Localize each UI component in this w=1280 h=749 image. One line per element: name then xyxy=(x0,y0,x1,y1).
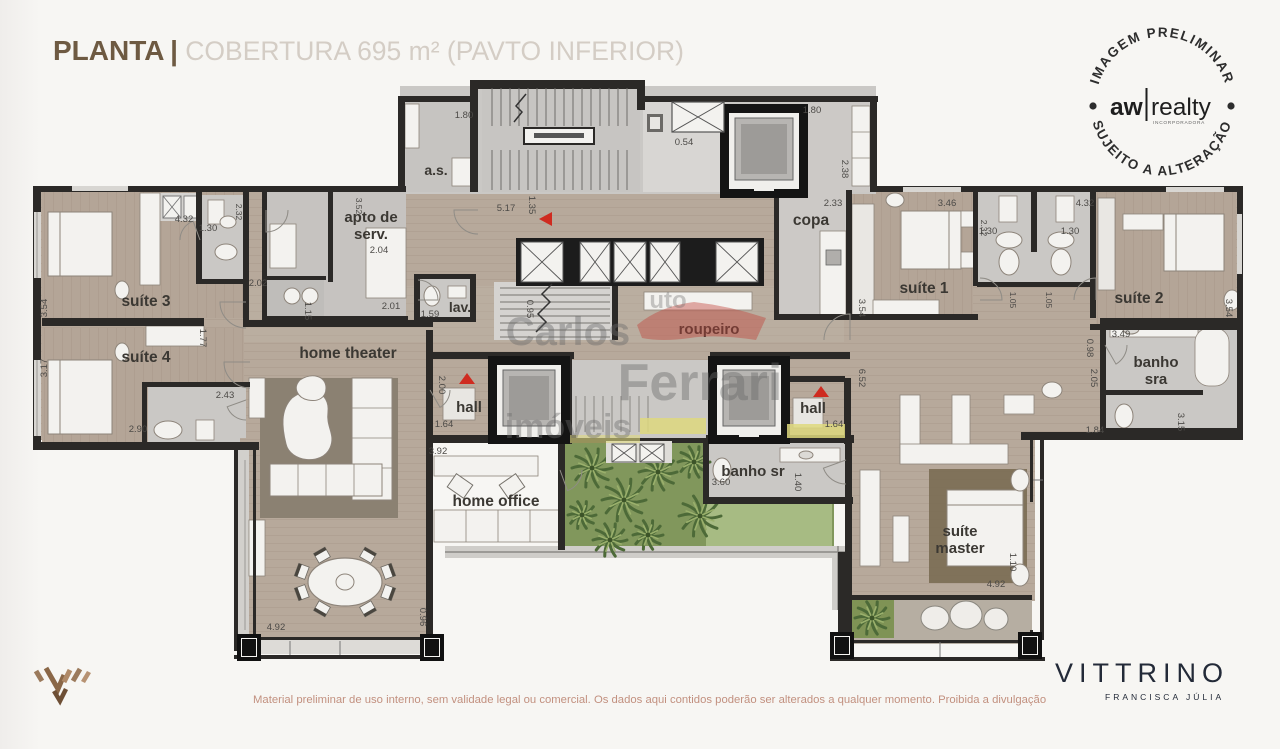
svg-text:SUJEITO A ALTERAÇÃO: SUJEITO A ALTERAÇÃO xyxy=(1090,118,1235,178)
svg-text:realty: realty xyxy=(1151,94,1212,121)
svg-text:IMAGEM PRELIMINAR: IMAGEM PRELIMINAR xyxy=(1087,25,1237,86)
svg-text:INCORPORADORA: INCORPORADORA xyxy=(1153,120,1205,126)
svg-text:aw: aw xyxy=(1110,94,1144,121)
